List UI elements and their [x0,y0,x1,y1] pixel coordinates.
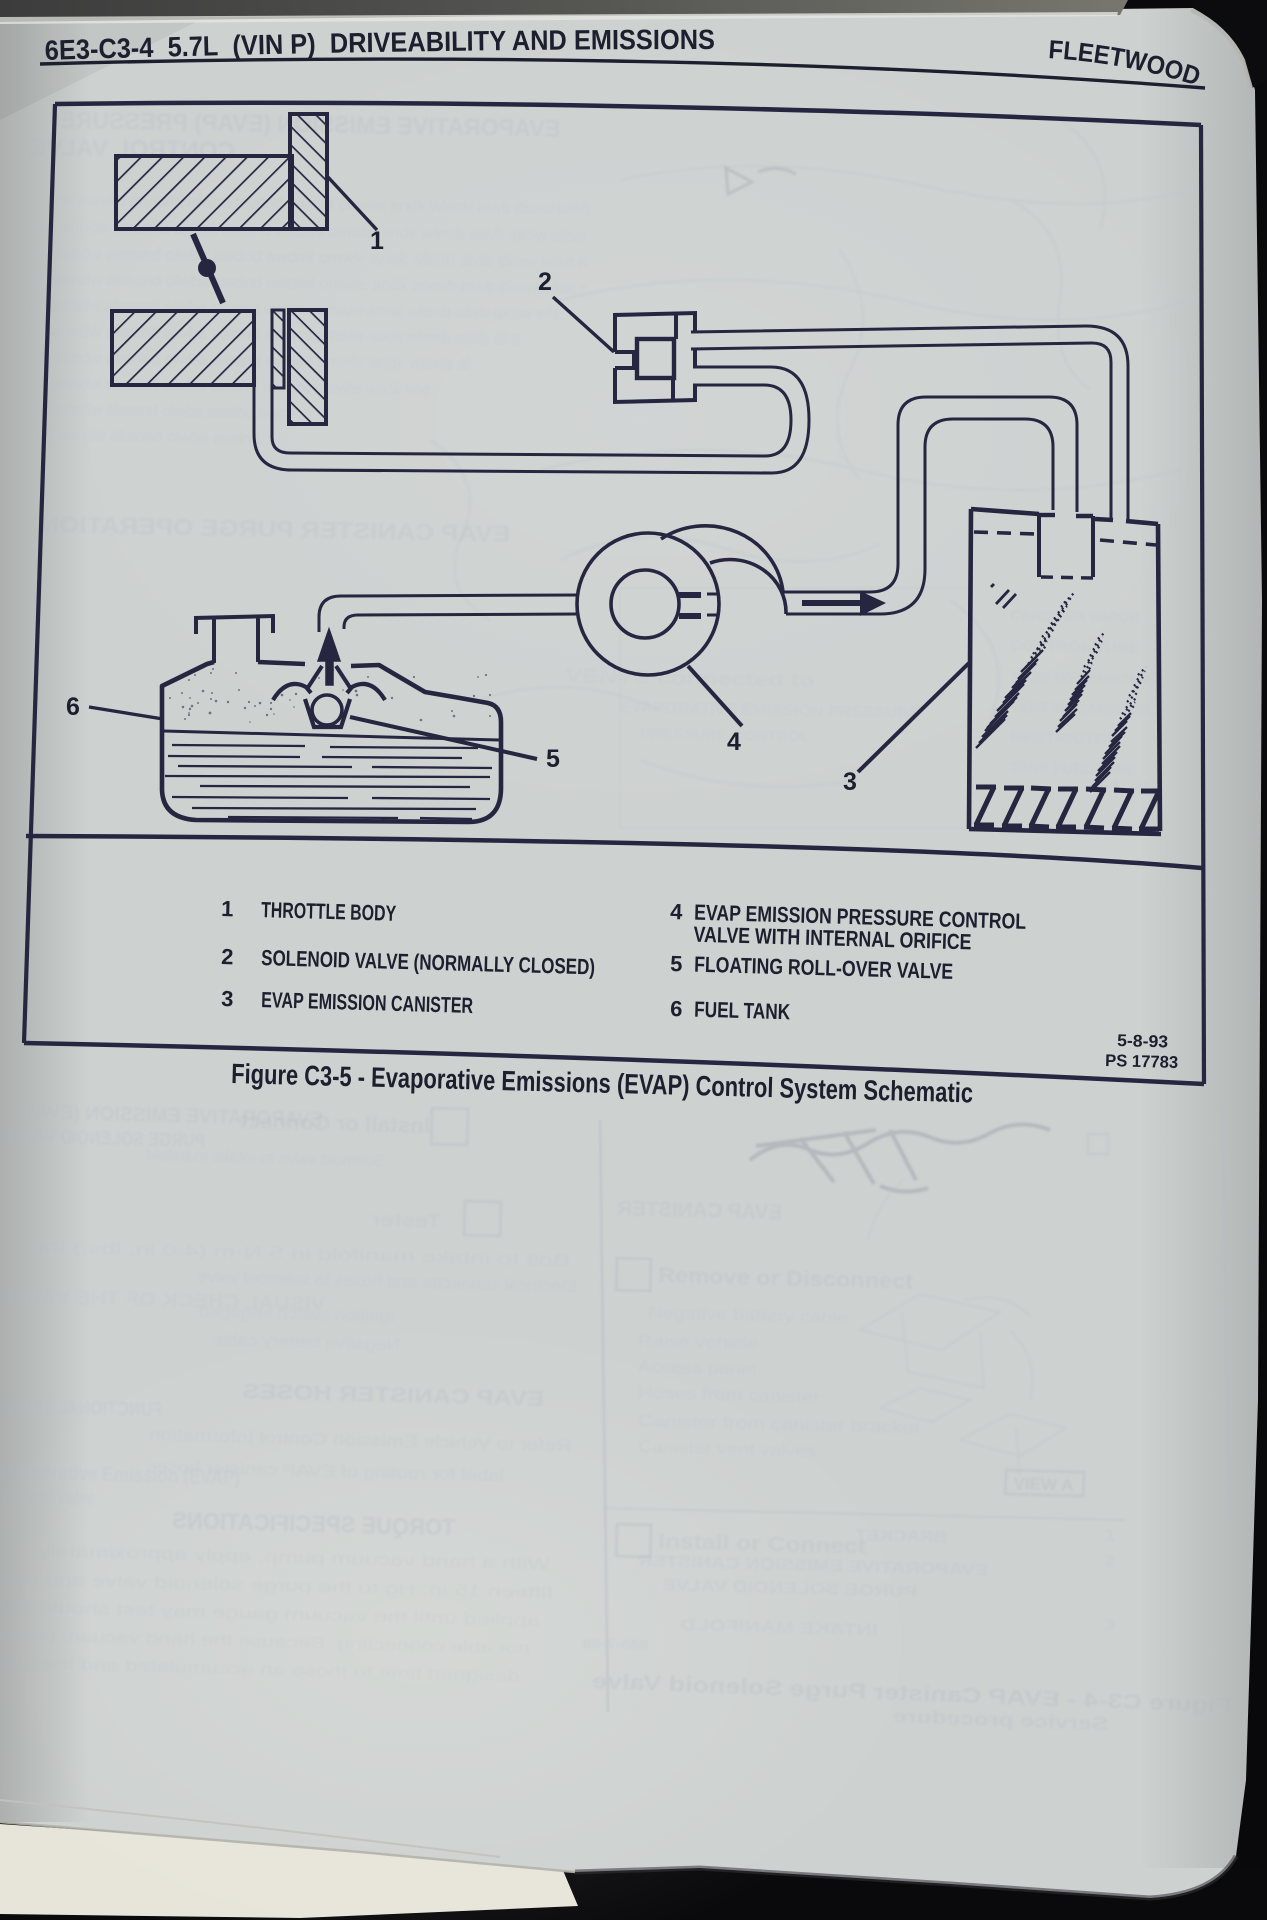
svg-text:RESTRICTOR: RESTRICTOR [1010,729,1121,748]
svg-text:3: 3 [1105,1617,1116,1634]
svg-text:Control Valve: Control Valve [0,1485,95,1509]
svg-text:2: 2 [221,944,234,969]
svg-text:5: 5 [670,951,683,976]
svg-text:VIEW A: VIEW A [1013,1474,1073,1495]
svg-text:885-7-88: 885-7-88 [582,1635,649,1653]
svg-text:6: 6 [66,693,80,721]
svg-text:CANISTER VAPOR: CANISTER VAPOR [1010,607,1140,627]
svg-text:1: 1 [370,227,384,255]
svg-text:5: 5 [546,745,560,773]
svg-text:TANK FUEL TUBE: TANK FUEL TUBE [1010,759,1135,779]
svg-text:4: 4 [727,728,741,756]
svg-text:Tester: Tester [370,1210,441,1233]
svg-text:CONTROL TUBE: CONTROL TUBE [1010,637,1140,657]
svg-text:Access panel: Access panel [638,1357,756,1379]
svg-text:PRESSURE CONTROL: PRESSURE CONTROL [640,725,810,746]
svg-text:THROTTLE BODY: THROTTLE BODY [261,897,397,926]
svg-text:1: 1 [221,896,234,921]
svg-text:FUEL TANK: FUEL TANK [694,997,791,1025]
svg-text:PS 17783: PS 17783 [1105,1051,1179,1072]
svg-text:3: 3 [221,986,234,1011]
svg-text:EVAP CANISTER: EVAP CANISTER [617,1197,783,1224]
svg-text:1: 1 [1105,1527,1116,1544]
svg-text:no aondw akeond olwba awdnd: no aondw akeond olwba awdnd [36,425,260,448]
svg-text:3: 3 [843,768,857,796]
svg-text:BRACKET: BRACKET [855,1527,948,1546]
svg-text:6: 6 [670,996,683,1021]
svg-text:Raise vehicle: Raise vehicle [638,1331,758,1353]
svg-text:2: 2 [1105,1553,1116,1570]
svg-text:2: 2 [538,268,552,296]
svg-text:4: 4 [670,899,684,924]
svg-text:FUNCTIONAL TESTS: FUNCTIONAL TESTS [0,1396,162,1421]
svg-text:5-8-93: 5-8-93 [1117,1031,1169,1051]
